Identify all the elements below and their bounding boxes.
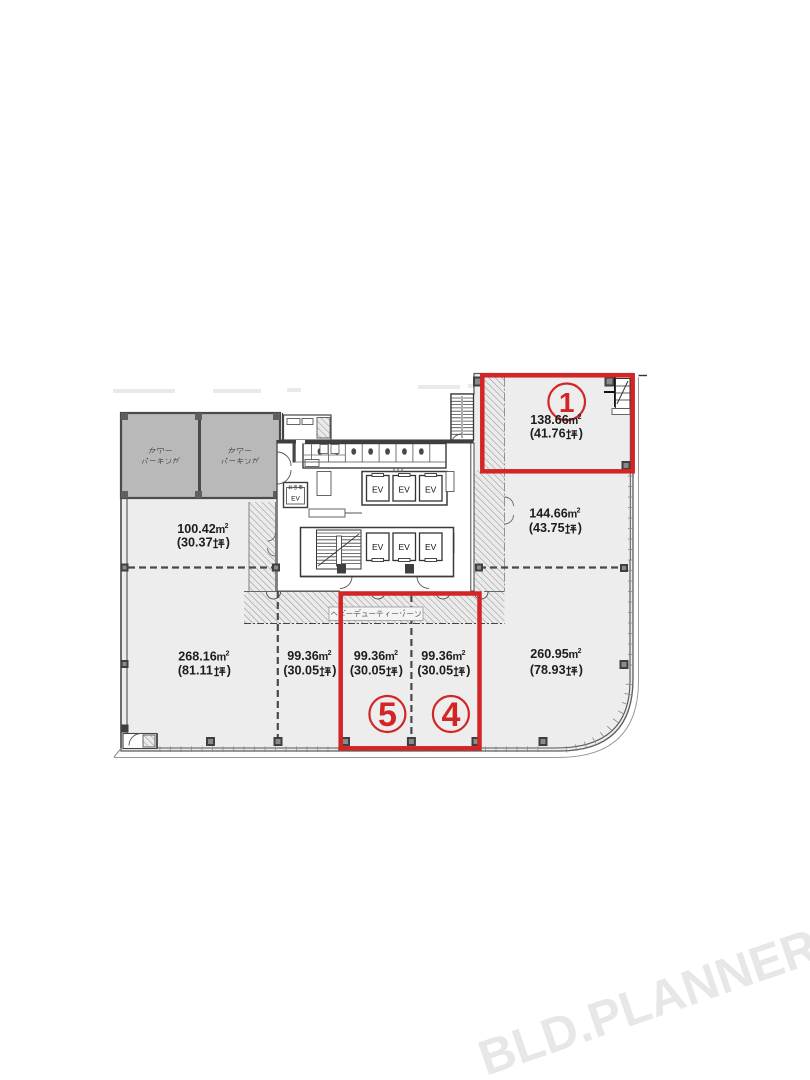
svg-text:(30.05: (30.05 bbox=[350, 664, 386, 678]
svg-text:99.36: 99.36 bbox=[354, 649, 386, 663]
svg-text:): ) bbox=[399, 664, 403, 678]
svg-text:99.36: 99.36 bbox=[421, 649, 453, 663]
svg-text:(78.93: (78.93 bbox=[530, 663, 566, 677]
svg-text:): ) bbox=[226, 536, 230, 550]
svg-text:EV: EV bbox=[399, 542, 411, 552]
svg-text:): ) bbox=[579, 663, 583, 677]
svg-text:EV: EV bbox=[372, 485, 384, 495]
svg-text:2: 2 bbox=[225, 523, 229, 530]
svg-text:2: 2 bbox=[578, 648, 582, 655]
svg-text:(30.37: (30.37 bbox=[177, 536, 213, 550]
svg-text:2: 2 bbox=[462, 650, 466, 657]
svg-text:260.95: 260.95 bbox=[530, 647, 569, 661]
svg-text:268.16: 268.16 bbox=[178, 650, 217, 664]
svg-text:(30.05: (30.05 bbox=[417, 664, 453, 678]
svg-text:144.66: 144.66 bbox=[529, 507, 568, 521]
svg-text:EV: EV bbox=[425, 542, 437, 552]
svg-text:EV: EV bbox=[425, 485, 437, 495]
svg-text:): ) bbox=[466, 664, 470, 678]
svg-text:138.66: 138.66 bbox=[530, 413, 569, 427]
svg-text:4: 4 bbox=[441, 696, 460, 734]
svg-text:): ) bbox=[332, 664, 336, 678]
svg-text:): ) bbox=[578, 521, 582, 535]
svg-text:2: 2 bbox=[328, 650, 332, 657]
svg-text:(30.05: (30.05 bbox=[283, 664, 319, 678]
svg-text:EV: EV bbox=[399, 485, 411, 495]
svg-text:100.42: 100.42 bbox=[177, 522, 216, 536]
svg-text:(41.76: (41.76 bbox=[530, 427, 566, 441]
svg-text:EV: EV bbox=[291, 496, 300, 503]
svg-text:(43.75: (43.75 bbox=[529, 521, 565, 535]
svg-text:A A A: A A A bbox=[392, 469, 404, 475]
svg-text:(81.11: (81.11 bbox=[178, 664, 213, 678]
svg-text:2: 2 bbox=[226, 650, 230, 657]
svg-text:2: 2 bbox=[577, 507, 581, 514]
svg-text:2: 2 bbox=[578, 414, 582, 421]
svg-text:99.36: 99.36 bbox=[287, 649, 319, 663]
svg-text:EV: EV bbox=[372, 542, 384, 552]
svg-text:): ) bbox=[227, 664, 231, 678]
svg-text:5: 5 bbox=[378, 696, 397, 734]
svg-text:2: 2 bbox=[394, 650, 398, 657]
svg-text:): ) bbox=[579, 427, 583, 441]
